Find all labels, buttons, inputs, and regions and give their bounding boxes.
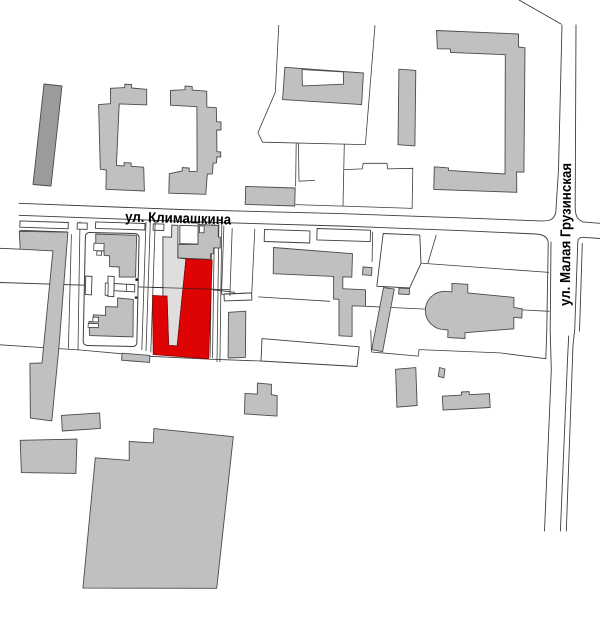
svg-text:ул. Климашкина: ул. Климашкина <box>125 210 232 229</box>
svg-text:ул. Малая Грузинская: ул. Малая Грузинская <box>558 163 575 306</box>
